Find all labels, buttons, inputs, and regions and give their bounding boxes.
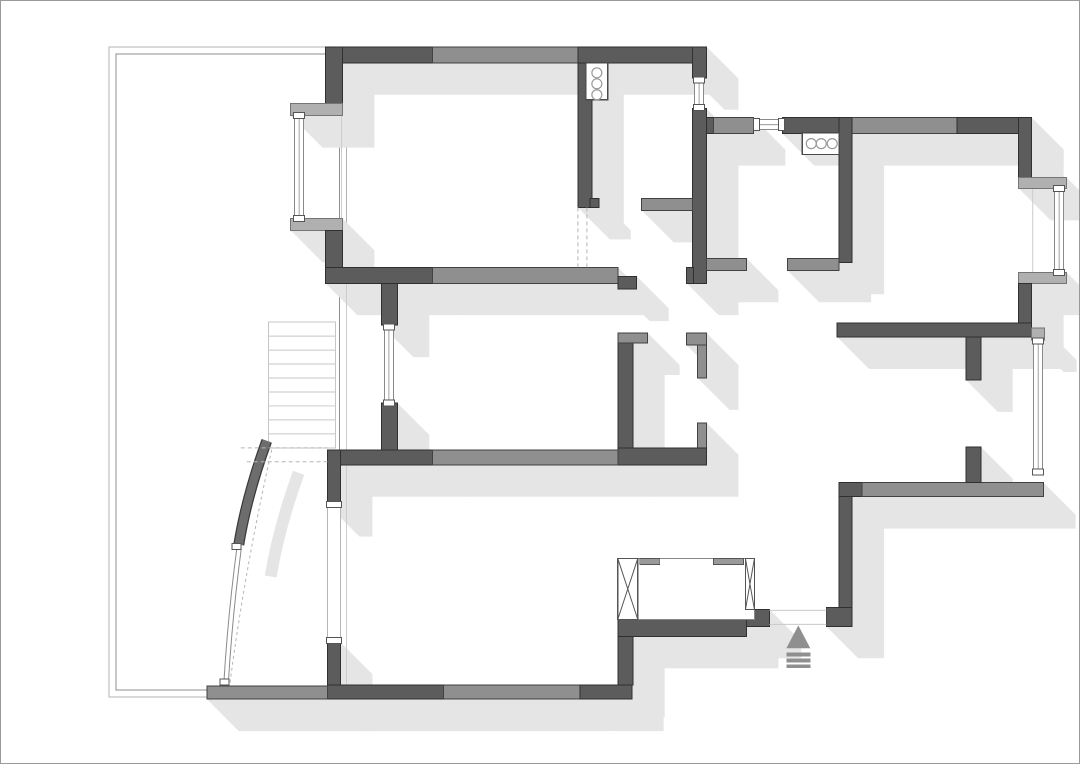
stairs [269, 322, 336, 448]
entry-wardrobe [618, 559, 755, 620]
window-bedroom2 [1033, 338, 1044, 475]
window-kitchen [753, 119, 784, 131]
window-top-small [694, 77, 705, 111]
window-bedroom1-bay [1054, 186, 1065, 276]
sink-fixture [586, 63, 608, 100]
window-middle-room [383, 324, 394, 406]
balcony-door-opening [327, 502, 342, 644]
window-left-bay [294, 113, 305, 222]
floor-plan [1, 1, 1079, 763]
curved-balcony-door [220, 441, 272, 685]
stove-fixture [802, 133, 839, 155]
floor-plan-canvas [0, 0, 1080, 764]
